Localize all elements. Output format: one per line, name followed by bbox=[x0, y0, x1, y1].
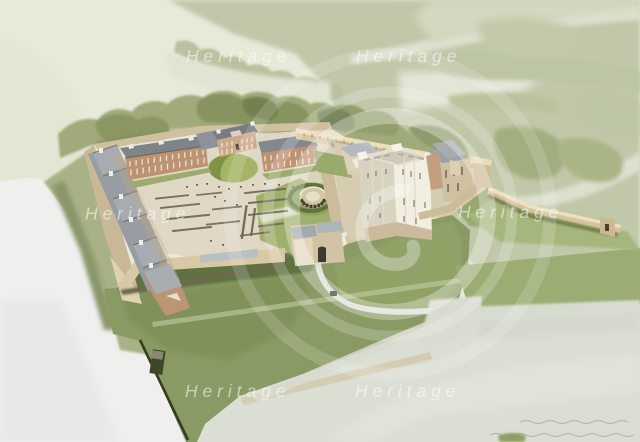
svg-text:Heritage: Heritage bbox=[355, 381, 460, 401]
svg-text:Heritage: Heritage bbox=[458, 202, 563, 222]
svg-text:Heritage: Heritage bbox=[356, 46, 461, 66]
svg-text:Heritage: Heritage bbox=[85, 204, 190, 224]
svg-text:Heritage: Heritage bbox=[185, 381, 290, 401]
svg-text:Heritage: Heritage bbox=[186, 46, 291, 66]
